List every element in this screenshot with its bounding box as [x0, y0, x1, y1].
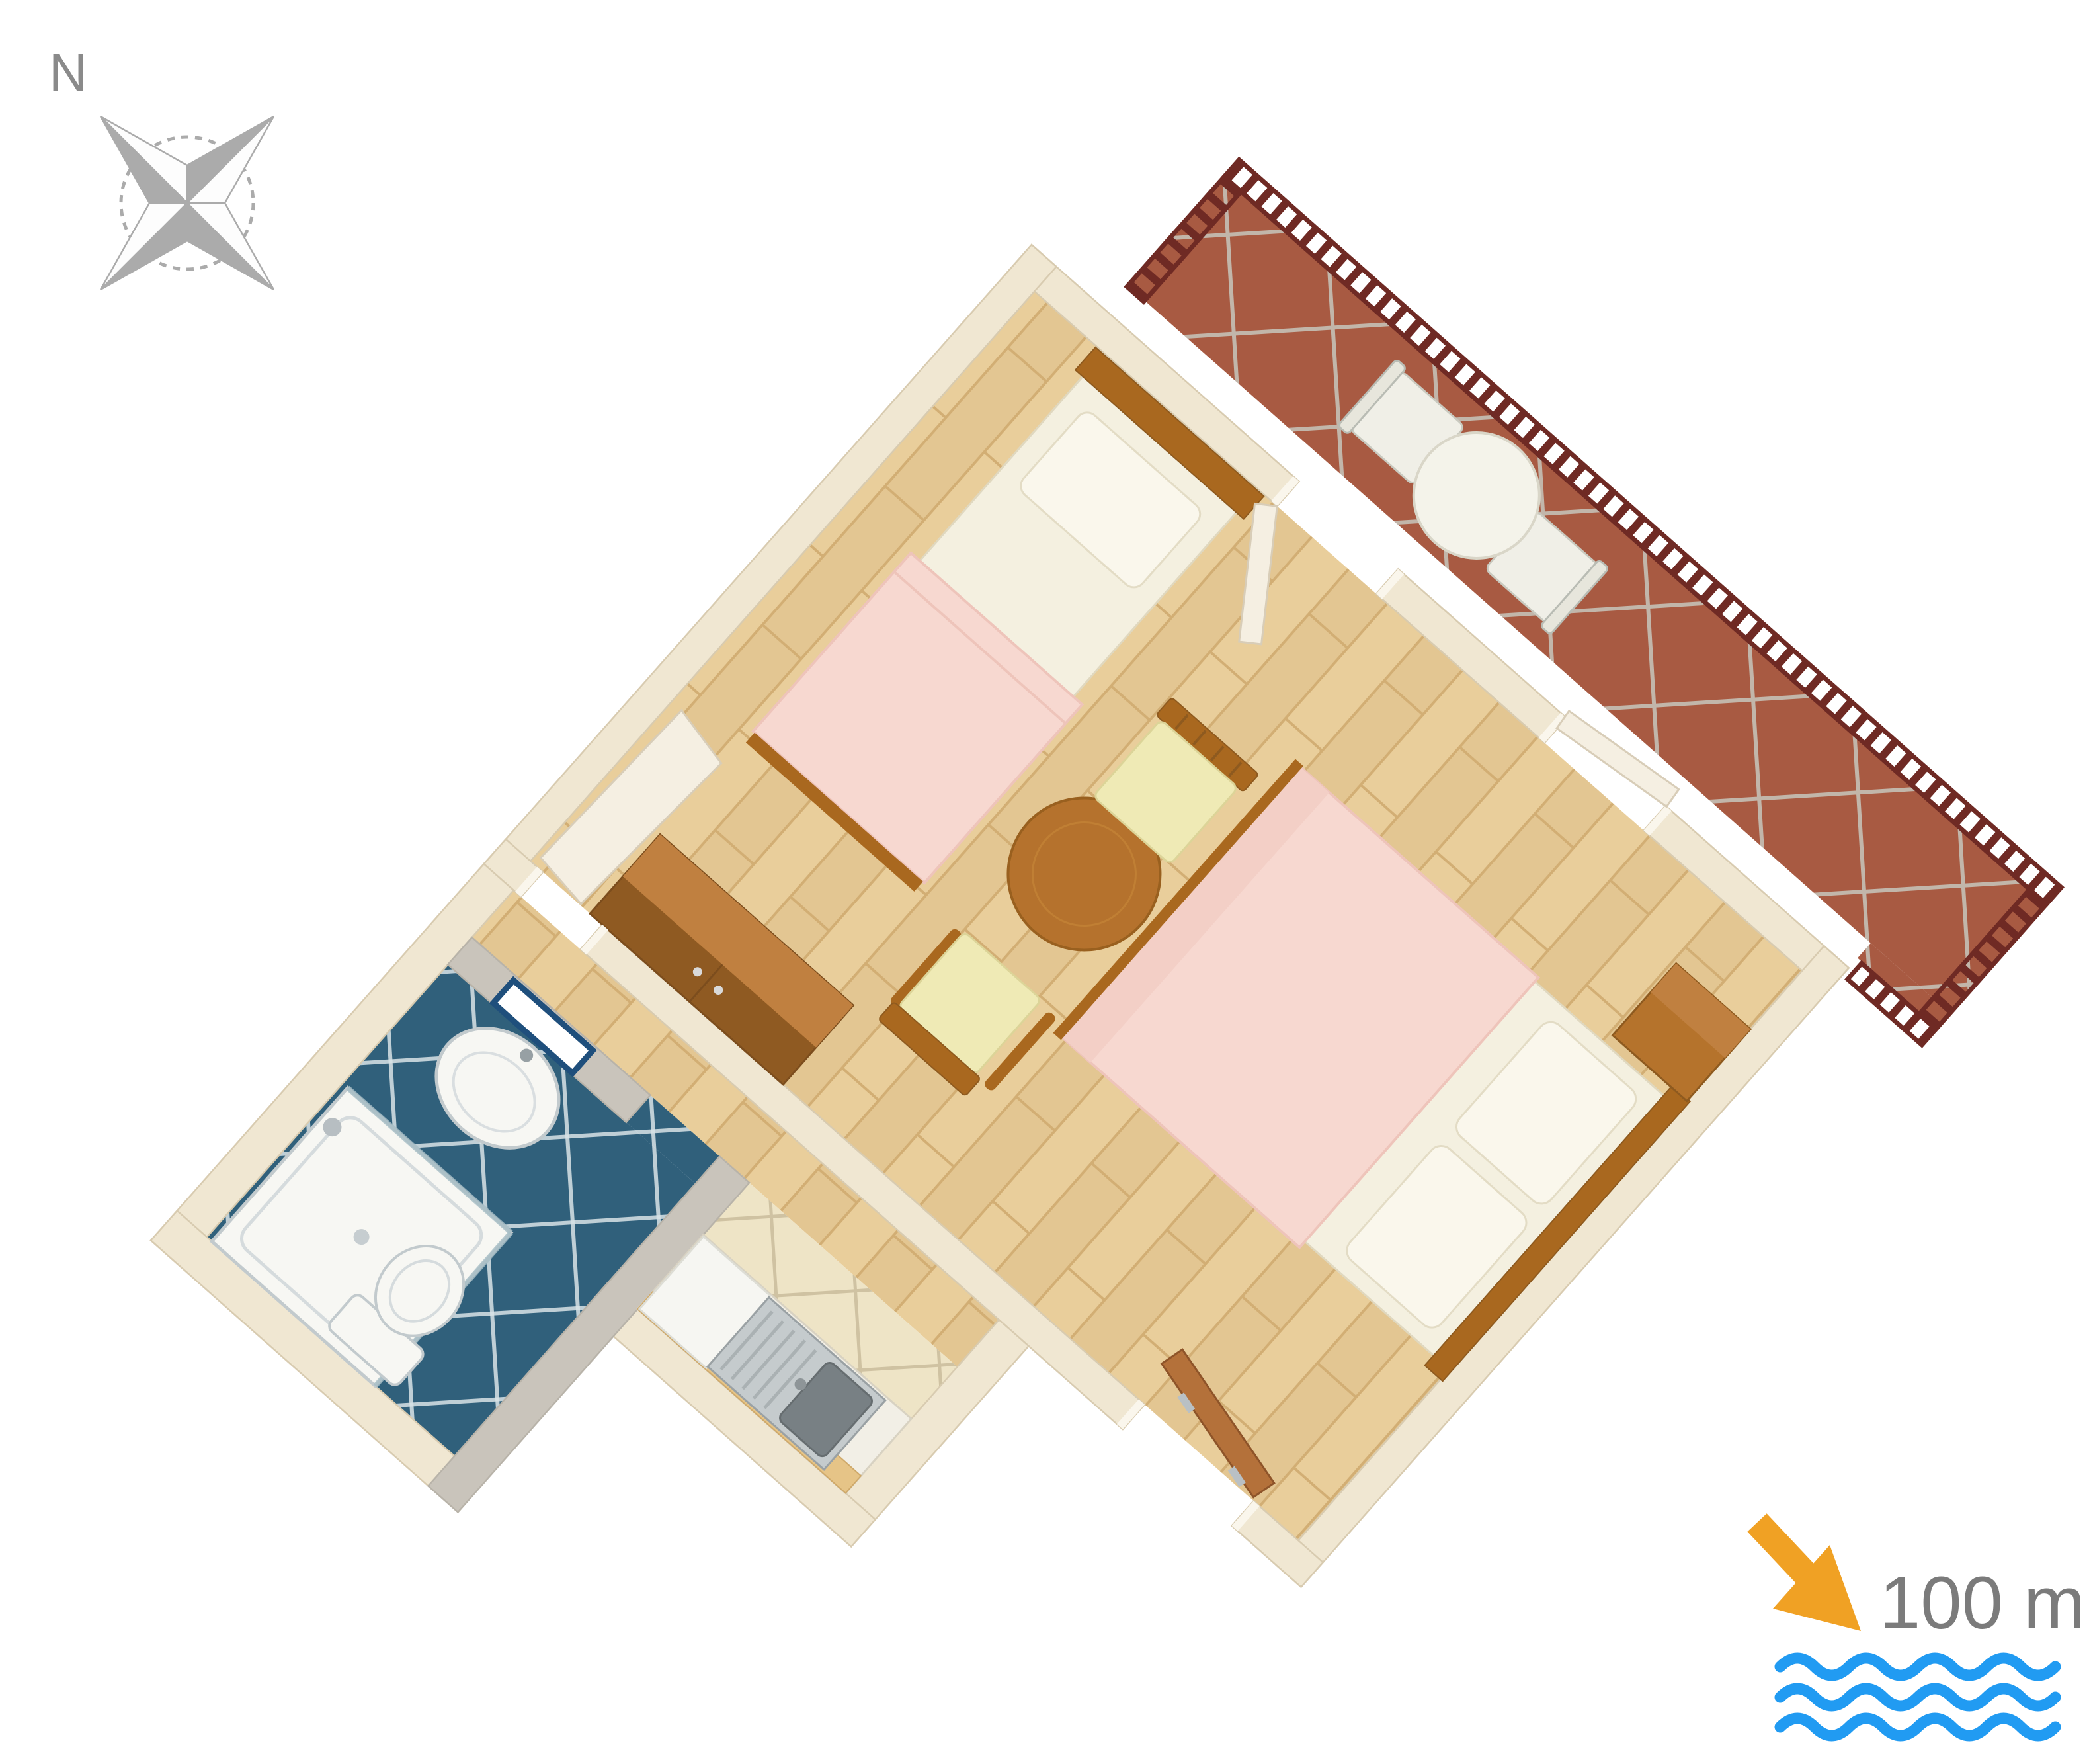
- distance-indicator: 100 m: [1757, 1523, 2085, 1736]
- distance-label: 100 m: [1879, 1562, 2085, 1644]
- sea-direction-arrow-icon: [1757, 1523, 1861, 1631]
- floor-plan: [151, 94, 2061, 1764]
- floorplan-screenshot: N: [0, 0, 2091, 1764]
- sea-waves-icon: [1780, 1658, 2055, 1736]
- compass-north-label: N: [49, 43, 87, 102]
- compass-star-icon: [101, 116, 274, 290]
- compass-rose: N: [49, 43, 274, 290]
